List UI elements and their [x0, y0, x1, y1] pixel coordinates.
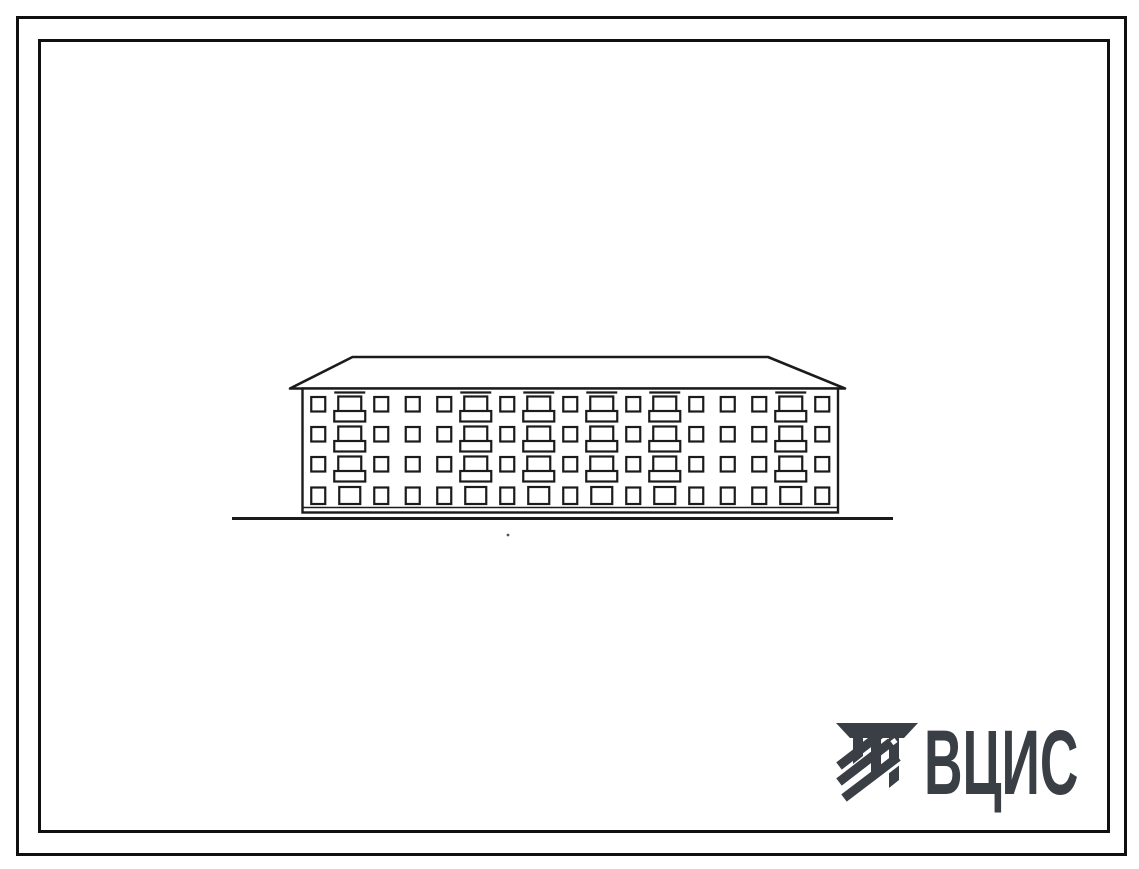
window — [815, 488, 829, 505]
window — [563, 488, 577, 505]
window — [374, 488, 388, 505]
window — [815, 457, 829, 472]
balcony-parapet — [775, 471, 806, 482]
balcony-window — [527, 427, 550, 442]
scan-speck — [507, 534, 510, 537]
window — [465, 487, 486, 504]
window — [311, 397, 325, 412]
balcony-window — [464, 397, 487, 412]
logo-emblem-icon — [836, 720, 918, 804]
window — [721, 488, 735, 505]
window — [339, 487, 360, 504]
balcony-window — [527, 397, 550, 412]
window — [500, 488, 514, 505]
window — [437, 457, 451, 472]
window — [437, 488, 451, 505]
window — [752, 488, 766, 505]
balcony-parapet — [523, 411, 554, 422]
balcony-window — [590, 397, 613, 412]
balcony-parapet — [460, 411, 491, 422]
balcony-parapet — [334, 471, 365, 482]
window — [374, 397, 388, 412]
window — [500, 427, 514, 442]
window — [406, 488, 420, 505]
window — [311, 488, 325, 505]
balcony-window — [338, 427, 361, 442]
balcony-window — [653, 457, 676, 472]
balcony-window — [338, 397, 361, 412]
window — [689, 397, 703, 412]
balcony-parapet — [460, 441, 491, 452]
balcony-window — [779, 457, 802, 472]
balcony-parapet — [586, 441, 617, 452]
window — [689, 457, 703, 472]
balcony-parapet — [649, 441, 680, 452]
window — [721, 397, 735, 412]
window — [752, 397, 766, 412]
window — [721, 427, 735, 442]
logo-text: ВЦИС — [924, 717, 1078, 809]
window — [563, 457, 577, 472]
balcony-parapet — [334, 411, 365, 422]
balcony-parapet — [775, 441, 806, 452]
balcony-window — [527, 457, 550, 472]
window — [689, 427, 703, 442]
window — [752, 427, 766, 442]
balcony-parapet — [523, 471, 554, 482]
window — [626, 397, 640, 412]
balcony-parapet — [586, 471, 617, 482]
window — [721, 457, 735, 472]
window — [500, 457, 514, 472]
window — [437, 427, 451, 442]
balcony-parapet — [334, 441, 365, 452]
balcony-window — [653, 427, 676, 442]
balcony-window — [653, 397, 676, 412]
window — [689, 488, 703, 505]
balcony-window — [464, 427, 487, 442]
window — [626, 457, 640, 472]
window — [780, 487, 801, 504]
window — [311, 457, 325, 472]
balcony-window — [779, 427, 802, 442]
window — [626, 488, 640, 505]
window — [374, 457, 388, 472]
window — [528, 487, 549, 504]
scanned-page: ВЦИС — [0, 0, 1139, 869]
balcony-window — [338, 457, 361, 472]
balcony-parapet — [460, 471, 491, 482]
balcony-window — [590, 457, 613, 472]
window — [406, 427, 420, 442]
balcony-parapet — [523, 441, 554, 452]
roof — [290, 357, 845, 389]
window — [311, 427, 325, 442]
window — [563, 427, 577, 442]
balcony-parapet — [649, 411, 680, 422]
window — [654, 487, 675, 504]
window — [437, 397, 451, 412]
window — [626, 427, 640, 442]
window — [815, 427, 829, 442]
window — [406, 397, 420, 412]
balcony-window — [779, 397, 802, 412]
window — [752, 457, 766, 472]
window — [591, 487, 612, 504]
window — [500, 397, 514, 412]
window — [374, 427, 388, 442]
balcony-parapet — [649, 471, 680, 482]
balcony-window — [590, 427, 613, 442]
window — [406, 457, 420, 472]
logo: ВЦИС — [836, 717, 1086, 807]
balcony-parapet — [586, 411, 617, 422]
balcony-window — [464, 457, 487, 472]
window — [563, 397, 577, 412]
window — [815, 397, 829, 412]
balcony-parapet — [775, 411, 806, 422]
